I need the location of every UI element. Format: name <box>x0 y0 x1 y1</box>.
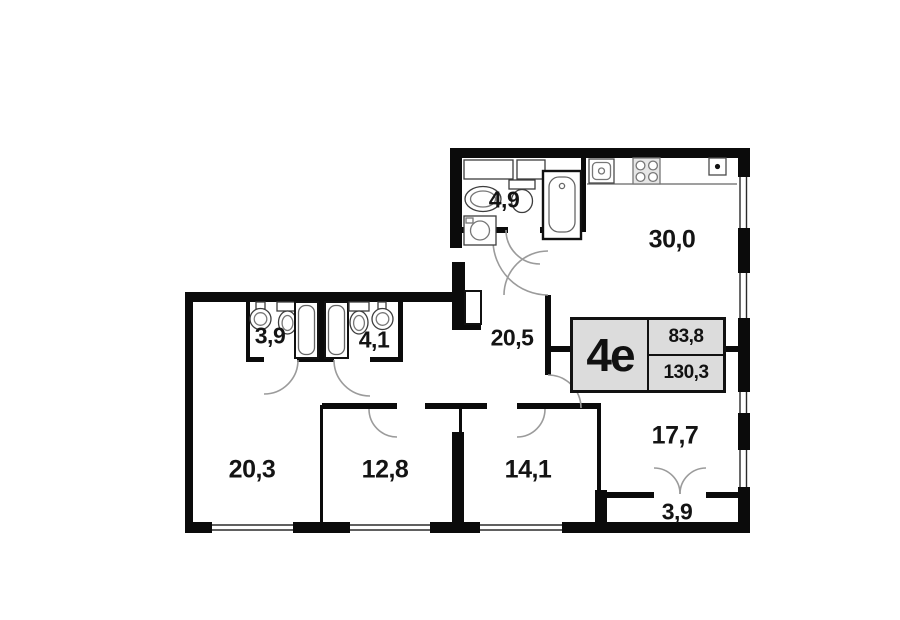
door-bedroom-3 <box>517 409 545 437</box>
bathtub-basin-icon <box>299 306 315 355</box>
kitchen-fixtures <box>587 158 737 184</box>
kitchen-sink-drain-icon <box>599 168 605 174</box>
room-area-bathroom-left: 3,9 <box>255 323 285 350</box>
door-bedroom-2 <box>369 409 397 437</box>
vent-dot-icon <box>715 164 720 169</box>
unit-type-label: 4е <box>573 320 647 390</box>
door-living-leaf2 <box>504 251 548 295</box>
burner-icon <box>649 173 658 182</box>
burner-icon <box>636 161 645 170</box>
door-living-leaf1 <box>493 240 548 295</box>
door-bathroom-right <box>334 360 370 396</box>
unit-total-area: 130,3 <box>649 356 723 390</box>
washing-machine-panel-icon <box>466 218 473 223</box>
floorplan-canvas: 4,9 30,0 20,5 3,9 4,1 20,3 12,8 14,1 17,… <box>0 0 900 620</box>
bathtub-basin-icon <box>329 306 345 355</box>
unit-areas: 83,8 130,3 <box>647 320 723 390</box>
unit-info-box: 4е 83,8 130,3 <box>570 317 726 393</box>
door-balcony-leaf1 <box>654 468 680 494</box>
bathroom-top-fixtures <box>464 160 581 245</box>
floorplan-drawing <box>0 0 900 620</box>
washing-machine-drum-icon <box>471 221 490 240</box>
door-bathroom-left <box>264 360 298 394</box>
room-area-balcony: 3,9 <box>662 499 692 526</box>
sink-basin-icon <box>376 313 389 326</box>
burner-icon <box>636 173 645 182</box>
counter-icon <box>517 160 545 179</box>
room-area-corridor: 20,5 <box>491 325 534 352</box>
room-area-bedroom-1: 20,3 <box>229 456 276 485</box>
bathtub-drain-icon <box>559 183 564 188</box>
room-area-bedroom-3: 14,1 <box>505 456 552 485</box>
door-balcony-leaf2 <box>680 468 706 494</box>
vent-shaft <box>465 291 481 324</box>
room-area-kitchen-living: 30,0 <box>649 226 696 255</box>
room-area-dining: 17,7 <box>652 422 699 451</box>
burner-icon <box>649 161 658 170</box>
room-area-bedroom-2: 12,8 <box>362 456 409 485</box>
unit-living-area: 83,8 <box>649 320 723 356</box>
room-area-bathroom-top: 4,9 <box>489 187 519 214</box>
counter-icon <box>464 160 513 179</box>
room-area-bathroom-right: 4,1 <box>359 327 389 354</box>
toilet-tank-icon <box>349 302 369 311</box>
